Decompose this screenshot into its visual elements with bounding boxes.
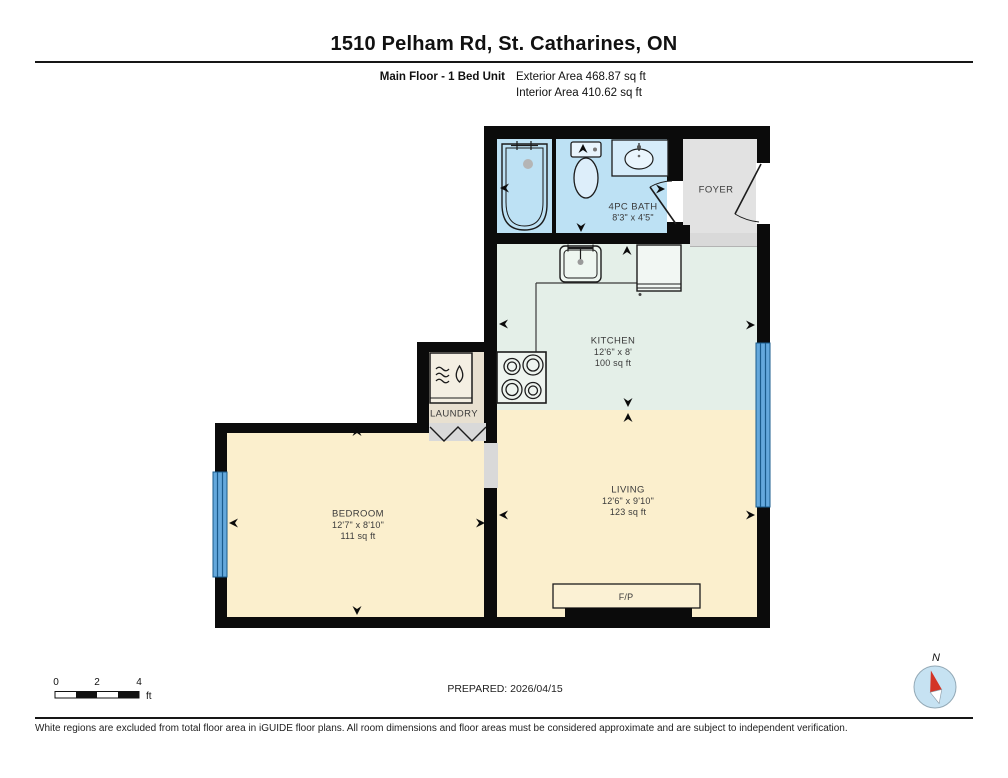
bedroom-label: BEDROOM	[332, 509, 384, 520]
wall-bedroom-top	[215, 423, 429, 433]
living-area: 123 sq ft	[610, 507, 647, 517]
scale-bar: 0 2 4 ft	[53, 677, 152, 702]
wall-tub-divider	[552, 139, 556, 233]
footer-divider	[35, 717, 973, 719]
wall-bath-foyer-lower	[667, 222, 683, 244]
laundry-door-recess	[429, 423, 486, 441]
kitchen-dims: 12'6" x 8'	[594, 347, 632, 357]
scale-tick-4: 4	[136, 677, 142, 688]
kitchen-sink-icon	[560, 245, 601, 283]
wall-top	[484, 126, 770, 139]
foyer-kitchen-threshold	[690, 233, 757, 247]
washer-icon	[430, 353, 472, 403]
scale-bar-segment	[118, 692, 139, 699]
fireplace-label: F/P	[619, 592, 634, 602]
wall-bath-foyer-upper	[667, 126, 683, 181]
living-label: LIVING	[611, 485, 645, 496]
bath-sink-icon	[612, 140, 668, 176]
bath-dims: 8'3" x 4'5"	[612, 213, 654, 223]
bedroom-dims: 12'7" x 8'10"	[332, 520, 384, 530]
kitchen-area: 100 sq ft	[595, 358, 632, 368]
hearth	[565, 608, 692, 617]
compass-icon: N	[914, 652, 956, 708]
laundry-label: LAUNDRY	[430, 409, 478, 420]
bedroom-area: 111 sq ft	[341, 531, 376, 541]
window-left	[213, 472, 227, 577]
foyer-door-opening	[756, 163, 771, 224]
living-dims: 12'6" x 9'10"	[602, 496, 654, 506]
wall-bath-kitchen	[484, 233, 690, 244]
scale-bar-segment	[76, 692, 97, 699]
bedroom-living-passage	[484, 443, 498, 488]
stove-icon	[497, 352, 546, 403]
scale-tick-2: 2	[94, 677, 100, 688]
wall-laundry-left	[417, 342, 429, 433]
window-right	[756, 343, 770, 507]
wall-center-upper	[484, 126, 497, 443]
wall-bottom	[215, 617, 770, 628]
scale-unit: ft	[146, 691, 152, 702]
prepared-date: PREPARED: 2026/04/15	[447, 683, 563, 695]
floorplan-drawing: 4PC BATH 8'3" x 4'5" FOYER KITCHEN 12'6"…	[0, 0, 1008, 778]
tub-drain	[523, 159, 533, 169]
foyer-label: FOYER	[699, 185, 734, 196]
disclaimer-text: White regions are excluded from total fl…	[35, 723, 985, 734]
bath-label: 4PC BATH	[609, 202, 658, 213]
counter-appliance	[637, 245, 681, 296]
wall-center-lower	[484, 488, 497, 617]
scale-tick-0: 0	[53, 677, 59, 688]
floorplan-page: 1510 Pelham Rd, St. Catharines, ON Main …	[0, 0, 1008, 778]
kitchen-label: KITCHEN	[591, 336, 636, 347]
north-label: N	[932, 652, 940, 664]
